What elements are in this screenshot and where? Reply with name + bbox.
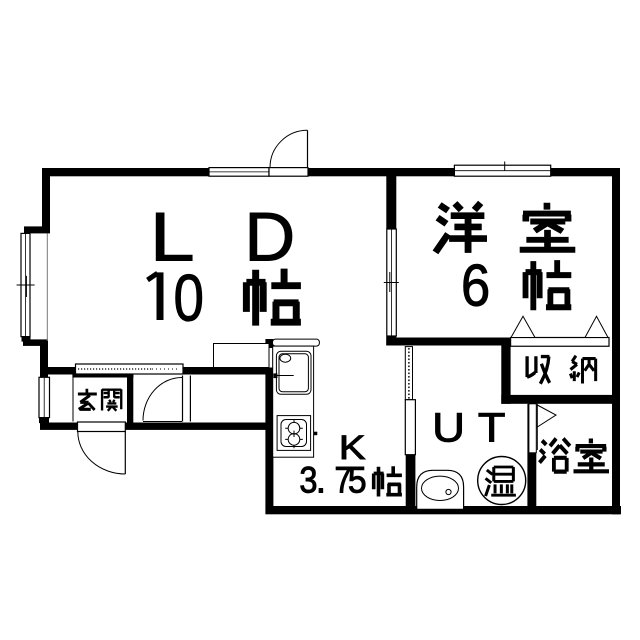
- svg-text:0: 0: [173, 261, 203, 335]
- svg-text:5: 5: [348, 460, 367, 501]
- svg-text:6: 6: [461, 252, 490, 318]
- svg-text:U: U: [432, 405, 465, 451]
- svg-text:3: 3: [299, 460, 317, 501]
- svg-text:.: .: [316, 460, 326, 501]
- svg-text:T: T: [478, 405, 506, 451]
- svg-text:D: D: [244, 199, 295, 276]
